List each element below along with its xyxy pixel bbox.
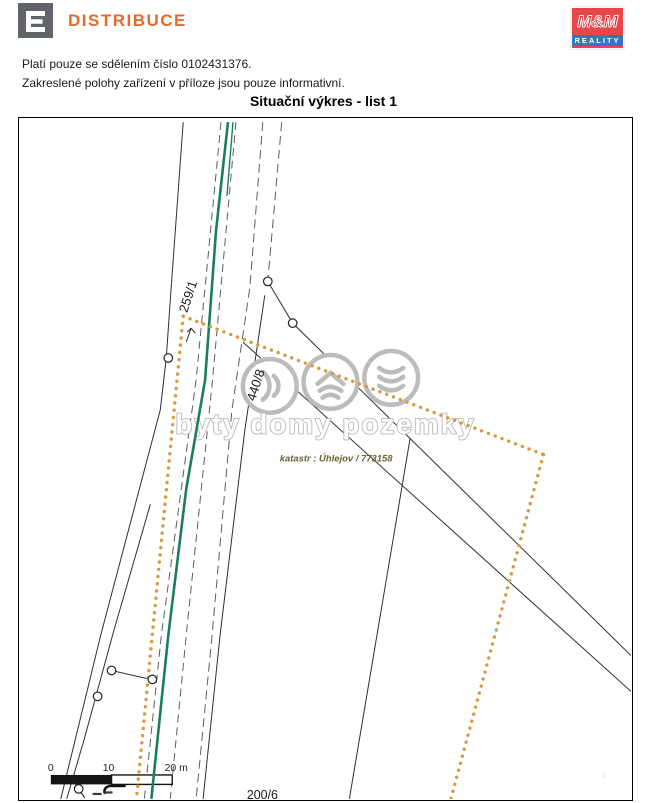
sheet-title: Situační výkres - list 1 [0, 93, 647, 109]
scale-bar-white-segment [112, 775, 173, 784]
cut-label-marks [93, 791, 113, 795]
scale-tick-0: 0 [48, 763, 54, 774]
leader-arrow [186, 328, 195, 342]
cez-logo-icon [18, 3, 53, 38]
parcel-label-259-1: 259/1 [176, 279, 200, 314]
parcel-label-200-6: 200/6 [247, 788, 278, 799]
notice-line-1: Platí pouze se sdělením číslo 0102431376… [22, 57, 252, 71]
cez-logo [18, 3, 53, 38]
scale-bar-black-segment [51, 775, 112, 784]
mm-logo-text: M&M [572, 8, 623, 35]
micro-copyright-mark: © [602, 773, 607, 780]
scale-tick-10: 10 [103, 763, 115, 774]
power-line-green [151, 122, 233, 799]
cez-brand-text: DISTRIBUCE [68, 11, 187, 31]
mm-reality-text: REALITY [572, 35, 623, 46]
pole-symbols [73, 277, 297, 798]
notice-line-2: Zakreslené polohy zařízení v příloze jso… [22, 76, 345, 90]
watermark-text: byty domy pozemky [175, 409, 475, 440]
mm-reality-logo: M&M REALITY [571, 7, 624, 49]
watermark: byty domy pozemky [175, 351, 475, 440]
situational-map: byty domy pozemky 0 10 20 m [18, 117, 633, 801]
map-canvas: byty domy pozemky 0 10 20 m [19, 118, 631, 799]
katastr-label: katastr : Úhlejov / 773158 [280, 452, 394, 464]
scale-tick-20m: 20 m [165, 763, 188, 774]
